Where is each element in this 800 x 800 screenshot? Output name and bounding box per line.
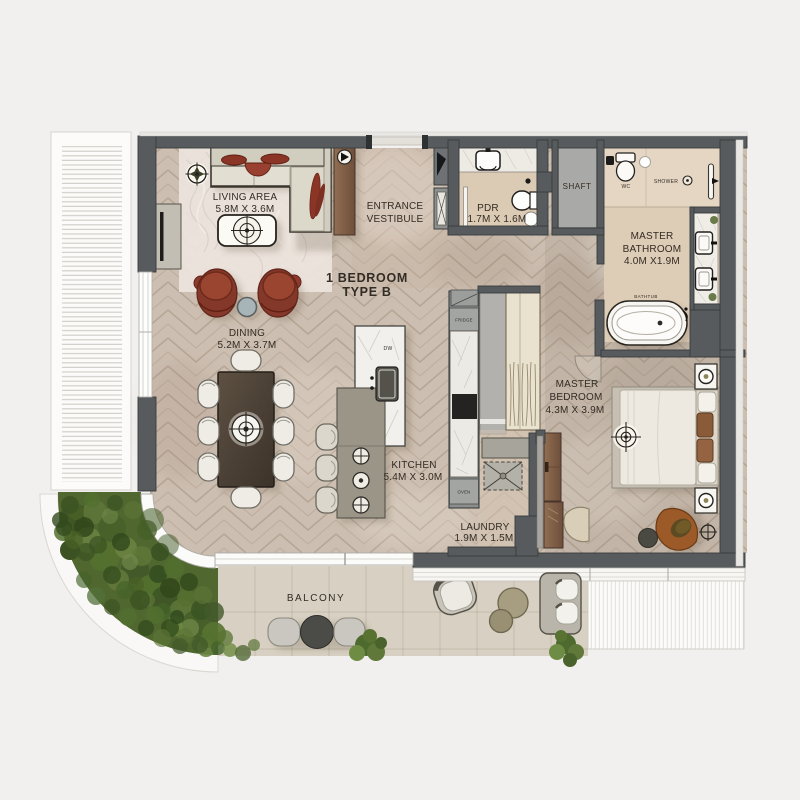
svg-text:BATHTUB: BATHTUB <box>634 294 657 299</box>
svg-text:DINING: DINING <box>229 328 265 339</box>
svg-text:LIVING AREA: LIVING AREA <box>213 192 278 203</box>
svg-text:5.8M X 3.6M: 5.8M X 3.6M <box>216 204 275 215</box>
svg-text:ENTRANCE: ENTRANCE <box>367 201 424 212</box>
svg-text:BALCONY: BALCONY <box>287 593 345 604</box>
svg-text:SHAFT: SHAFT <box>563 182 592 191</box>
svg-text:BEDROOM: BEDROOM <box>549 392 602 403</box>
svg-text:FRIDGE: FRIDGE <box>455 318 472 323</box>
svg-text:5.4M X 3.0M: 5.4M X 3.0M <box>384 472 443 483</box>
svg-text:MASTER: MASTER <box>631 231 674 242</box>
svg-text:5.2M X 3.7M: 5.2M X 3.7M <box>218 340 277 351</box>
svg-text:LAUNDRY: LAUNDRY <box>460 522 509 533</box>
svg-text:SHOWER: SHOWER <box>654 179 678 185</box>
svg-text:1.7M X 1.6M: 1.7M X 1.6M <box>468 214 527 225</box>
svg-text:DW: DW <box>384 346 393 352</box>
svg-text:MASTER: MASTER <box>556 379 599 390</box>
svg-text:VESTIBULE: VESTIBULE <box>367 214 424 225</box>
svg-text:KITCHEN: KITCHEN <box>391 460 436 471</box>
svg-text:TYPE B: TYPE B <box>342 285 391 299</box>
svg-text:WC: WC <box>622 184 631 190</box>
svg-text:4.3M X 3.9M: 4.3M X 3.9M <box>546 405 605 416</box>
svg-text:1.9M X 1.5M: 1.9M X 1.5M <box>455 533 514 544</box>
svg-text:BATHROOM: BATHROOM <box>623 244 682 255</box>
svg-text:1 BEDROOM: 1 BEDROOM <box>326 271 408 285</box>
svg-text:PDR: PDR <box>477 203 499 214</box>
svg-text:OVEN: OVEN <box>458 490 471 495</box>
svg-text:4.0M X1.9M: 4.0M X1.9M <box>624 256 680 267</box>
